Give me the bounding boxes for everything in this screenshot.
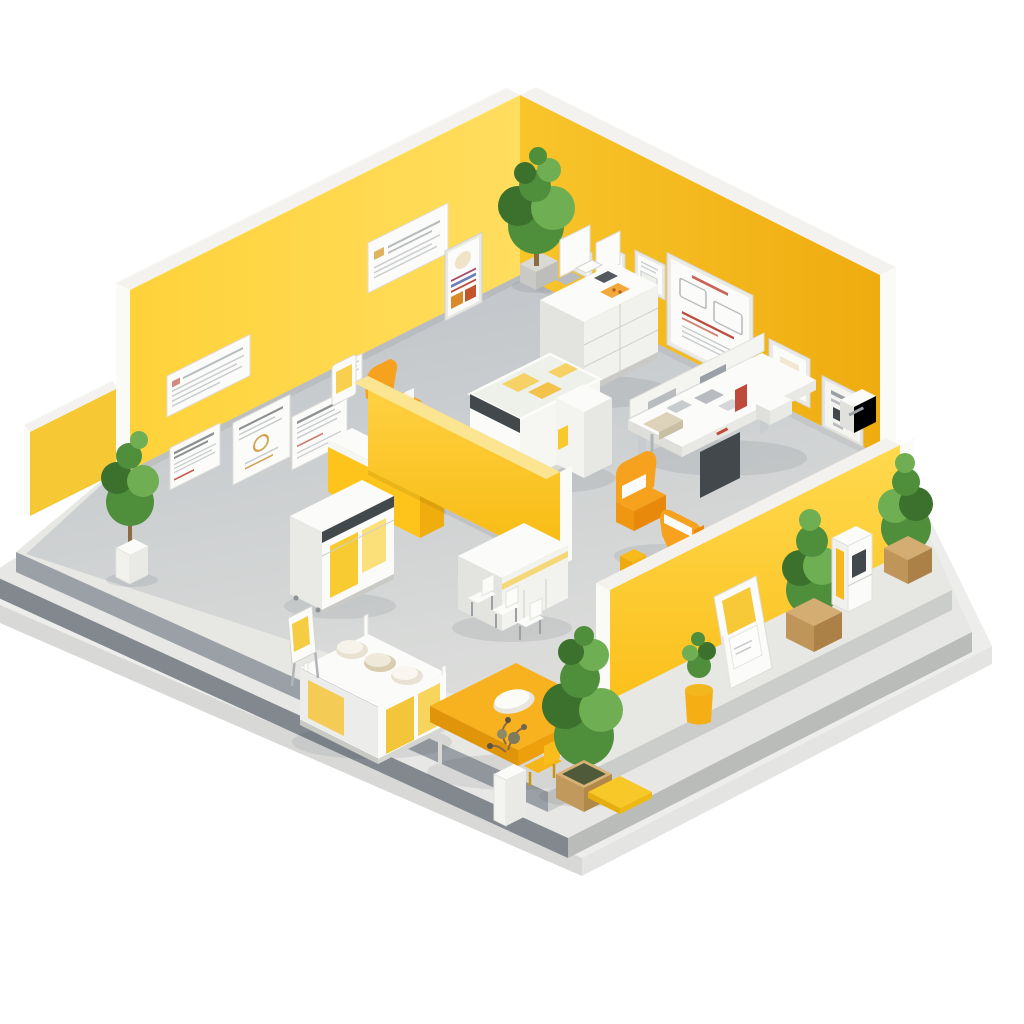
isometric-scene: Isometric cutaway 3D render of a yellow … (0, 0, 1024, 1024)
walkway-station (832, 526, 872, 612)
render-stage: Isometric cutaway 3D render of a yellow … (0, 0, 1024, 1024)
